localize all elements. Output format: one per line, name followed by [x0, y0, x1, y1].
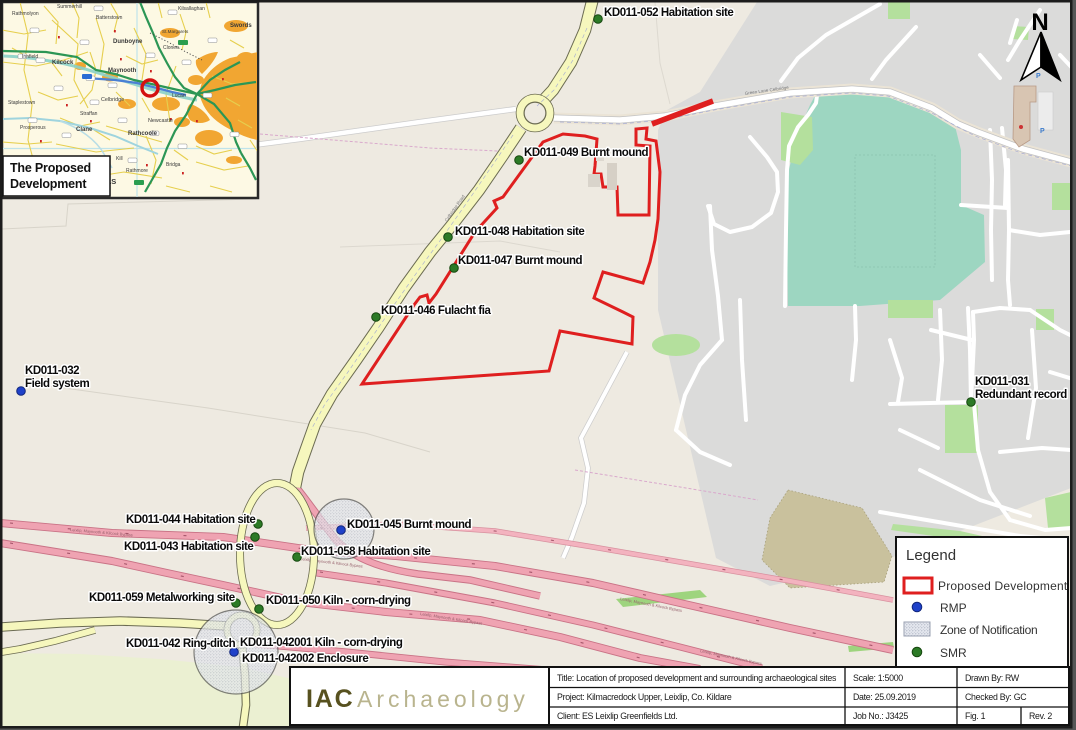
- svg-text:Rathcoole: Rathcoole: [128, 131, 158, 137]
- svg-text:KD011-043 Habitation site: KD011-043 Habitation site: [124, 541, 253, 553]
- svg-text:KD011-059 Metalworking site: KD011-059 Metalworking site: [89, 592, 235, 604]
- svg-text:Date: 25.09.2019: Date: 25.09.2019: [853, 692, 916, 702]
- svg-text:Swords: Swords: [230, 23, 252, 29]
- svg-text:Innfield: Innfield: [22, 54, 38, 60]
- svg-text:Development: Development: [10, 177, 87, 191]
- svg-text:Maynooth: Maynooth: [108, 68, 137, 74]
- svg-text:Clonee: Clonee: [163, 45, 179, 51]
- svg-text:P: P: [1040, 128, 1045, 135]
- svg-text:Kilcock: Kilcock: [52, 60, 74, 66]
- svg-text:Rev. 2: Rev. 2: [1029, 711, 1052, 721]
- svg-text:KD011-046 Fulacht fia: KD011-046 Fulacht fia: [381, 305, 491, 317]
- svg-text:Clane: Clane: [76, 127, 93, 133]
- svg-text:P: P: [1036, 73, 1041, 80]
- svg-text:Field system: Field system: [25, 378, 89, 390]
- svg-text:Fig. 1: Fig. 1: [965, 711, 986, 721]
- svg-text:Archaeology: Archaeology: [357, 686, 529, 712]
- svg-text:Summerhill: Summerhill: [57, 4, 82, 10]
- svg-text:Project: Kilmacredock Upper, L: Project: Kilmacredock Upper, Leixlip, Co…: [557, 692, 732, 702]
- svg-text:Prosperous: Prosperous: [20, 125, 46, 131]
- svg-text:RMP: RMP: [940, 601, 967, 615]
- svg-text:Client: ES Leixlip Greenfields: Client: ES Leixlip Greenfields Ltd.: [557, 711, 678, 721]
- svg-text:Celbridge: Celbridge: [101, 97, 124, 103]
- svg-text:SMR: SMR: [940, 646, 967, 660]
- svg-text:KD011-052 Habitation site: KD011-052 Habitation site: [604, 7, 733, 19]
- svg-text:Newcastle: Newcastle: [148, 118, 173, 124]
- svg-text:Dunboyne: Dunboyne: [113, 39, 143, 45]
- svg-text:KD011-044 Habitation site: KD011-044 Habitation site: [126, 514, 255, 526]
- svg-text:Scale: 1:5000: Scale: 1:5000: [853, 673, 903, 683]
- svg-text:Kilsallaghan: Kilsallaghan: [178, 6, 205, 12]
- svg-text:IAC: IAC: [306, 685, 354, 713]
- svg-text:Drawn By: RW: Drawn By: RW: [965, 673, 1020, 683]
- svg-text:KD011-031: KD011-031: [975, 376, 1030, 388]
- svg-text:Redundant record: Redundant record: [975, 389, 1067, 401]
- svg-text:Rathmolyon: Rathmolyon: [12, 11, 39, 17]
- svg-text:Proposed Development: Proposed Development: [938, 579, 1068, 593]
- svg-text:The Proposed: The Proposed: [10, 161, 91, 175]
- svg-text:KD011-049 Burnt mound: KD011-049 Burnt mound: [524, 147, 649, 159]
- svg-text:Straffan: Straffan: [80, 111, 98, 117]
- svg-text:KD011-042 Ring-ditch: KD011-042 Ring-ditch: [126, 638, 236, 650]
- svg-text:Staplestown: Staplestown: [8, 100, 35, 106]
- svg-text:Legend: Legend: [906, 547, 956, 564]
- svg-text:Rathmore: Rathmore: [126, 168, 148, 174]
- svg-text:KD011-045 Burnt mound: KD011-045 Burnt mound: [347, 519, 472, 531]
- svg-text:Job No.: J3425: Job No.: J3425: [853, 711, 908, 721]
- svg-text:N: N: [1031, 9, 1048, 36]
- svg-text:Batterstown: Batterstown: [96, 15, 123, 21]
- svg-text:KD011-047 Burnt mound: KD011-047 Burnt mound: [458, 255, 583, 267]
- svg-text:Zone of Notification: Zone of Notification: [940, 623, 1037, 637]
- svg-text:Kill: Kill: [116, 156, 123, 162]
- svg-text:Title: Location of proposed de: Title: Location of proposed development …: [557, 673, 837, 683]
- svg-text:KD011-042001 Kiln - corn-dryin: KD011-042001 Kiln - corn-drying: [240, 637, 403, 649]
- svg-text:St.Margarets: St.Margarets: [162, 29, 189, 34]
- svg-text:Checked By: GC: Checked By: GC: [965, 692, 1027, 702]
- svg-text:Bridga: Bridga: [166, 162, 181, 168]
- svg-text:Lucan: Lucan: [172, 93, 186, 99]
- svg-text:KD011-042002 Enclosure: KD011-042002 Enclosure: [242, 653, 368, 665]
- svg-text:KD011-032: KD011-032: [25, 365, 79, 377]
- svg-text:KD011-048 Habitation site: KD011-048 Habitation site: [455, 226, 584, 238]
- svg-text:KD011-058 Habitation site: KD011-058 Habitation site: [301, 546, 430, 558]
- svg-text:KD011-050 Kiln - corn-drying: KD011-050 Kiln - corn-drying: [266, 595, 411, 607]
